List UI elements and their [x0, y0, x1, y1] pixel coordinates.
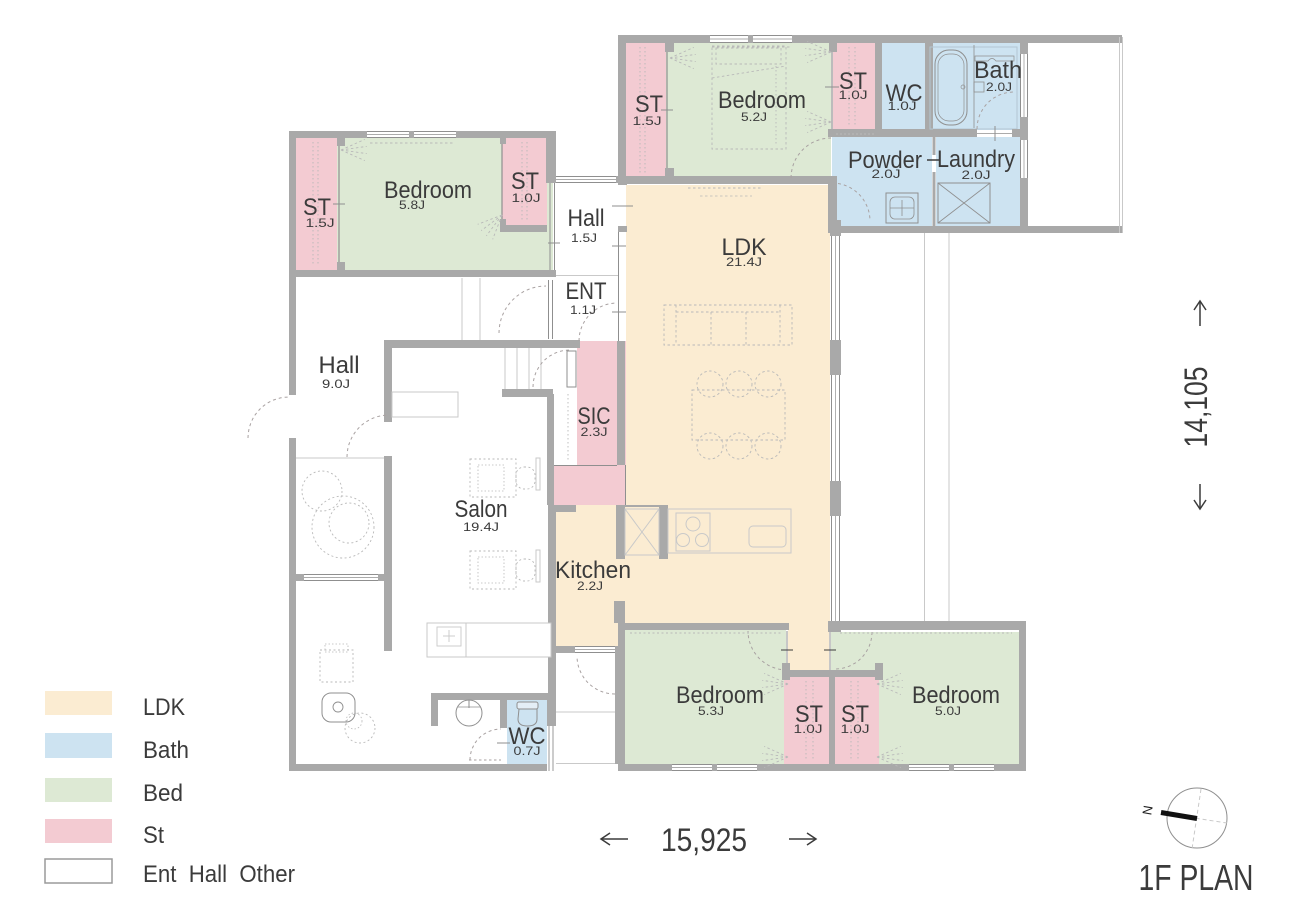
svg-text:14,105: 14,105: [1178, 367, 1214, 448]
svg-text:Bath: Bath: [143, 737, 189, 764]
svg-text:ST: ST: [511, 168, 539, 195]
svg-text:1.5J: 1.5J: [571, 233, 597, 245]
svg-text:2.0J: 2.0J: [986, 82, 1012, 94]
svg-text:2.0J: 2.0J: [962, 170, 991, 182]
svg-text:SIC: SIC: [578, 403, 611, 430]
svg-text:5.8J: 5.8J: [399, 200, 425, 212]
svg-text:15,925: 15,925: [661, 822, 747, 858]
svg-text:Bath: Bath: [974, 57, 1022, 84]
svg-text:Bedroom: Bedroom: [718, 87, 806, 114]
svg-text:Bed: Bed: [143, 780, 183, 807]
svg-text:1.5J: 1.5J: [306, 218, 335, 230]
svg-text:Hall: Hall: [319, 352, 360, 379]
svg-text:Bedroom: Bedroom: [384, 177, 472, 204]
svg-text:1.0J: 1.0J: [512, 193, 541, 205]
svg-text:LDK: LDK: [143, 694, 185, 721]
svg-text:1.0J: 1.0J: [841, 724, 870, 736]
svg-text:1.0J: 1.0J: [839, 90, 868, 102]
svg-text:1F PLAN: 1F PLAN: [1139, 857, 1254, 898]
svg-text:1.5J: 1.5J: [633, 116, 662, 128]
svg-text:19.4J: 19.4J: [463, 522, 499, 534]
svg-text:Hall: Hall: [568, 205, 605, 232]
svg-text:0.7J: 0.7J: [514, 746, 541, 758]
svg-text:Ent Hall Other: Ent Hall Other: [143, 861, 295, 888]
svg-text:5.3J: 5.3J: [698, 706, 724, 718]
svg-text:ENT: ENT: [566, 278, 607, 305]
svg-text:1.0J: 1.0J: [794, 724, 823, 736]
svg-text:2.0J: 2.0J: [872, 169, 901, 181]
svg-text:21.4J: 21.4J: [726, 257, 762, 269]
svg-text:ST: ST: [303, 194, 331, 221]
svg-text:N: N: [1139, 804, 1155, 816]
svg-text:ST: ST: [635, 91, 663, 118]
svg-text:5.0J: 5.0J: [935, 706, 961, 718]
svg-text:Bedroom: Bedroom: [676, 682, 764, 709]
svg-text:1.1J: 1.1J: [570, 305, 596, 317]
svg-text:Laundry: Laundry: [937, 146, 1015, 173]
svg-text:Salon: Salon: [455, 496, 508, 523]
svg-text:9.0J: 9.0J: [322, 379, 350, 391]
svg-text:5.2J: 5.2J: [741, 112, 767, 124]
svg-text:2.2J: 2.2J: [577, 581, 603, 593]
svg-text:Bedroom: Bedroom: [912, 682, 1000, 709]
svg-text:Kitchen: Kitchen: [555, 557, 631, 584]
svg-text:1.0J: 1.0J: [888, 101, 917, 113]
svg-text:St: St: [143, 822, 164, 849]
svg-text:2.3J: 2.3J: [581, 427, 608, 439]
